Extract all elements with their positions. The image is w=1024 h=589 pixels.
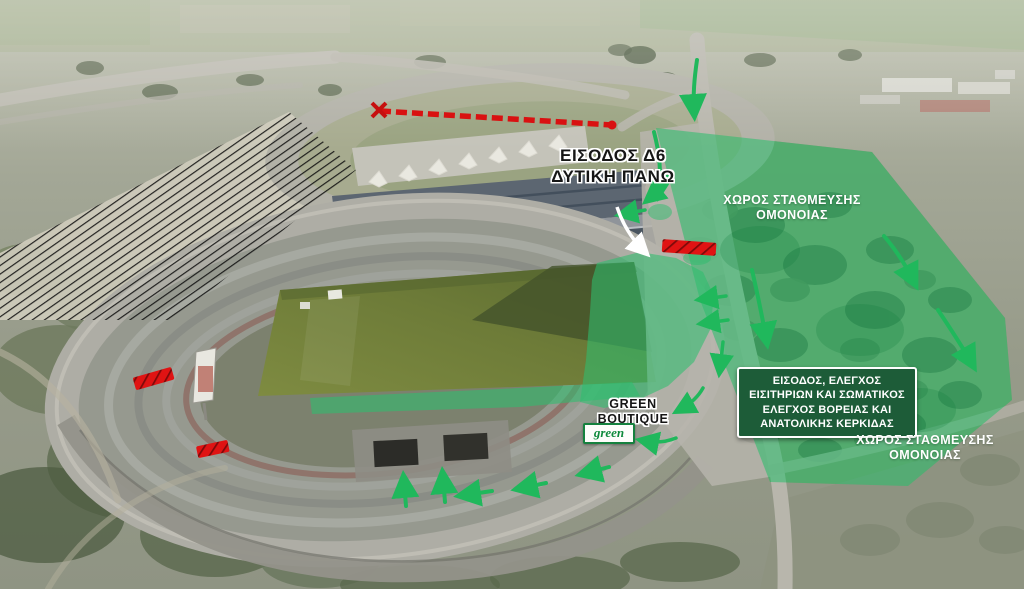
boutique-line1: GREEN [583, 397, 683, 412]
checkpoint-line2: ΕΙΣΙΤΗΡΙΩΝ ΚΑΙ ΣΩΜΑΤΙΚΟΣ [743, 388, 911, 402]
road-closed-barrier [196, 440, 230, 458]
parking-north-line2: ΟΜΟΝΟΙΑΣ [702, 208, 882, 223]
parking-north-line1: ΧΩΡΟΣ ΣΤΑΘΜΕΥΣΗΣ [702, 193, 882, 208]
route-arrow [522, 483, 546, 488]
checkpoint-line3: ΕΛΕΓΧΟΣ ΒΟΡΕΙΑΣ ΚΑΙ [743, 403, 911, 417]
entrance-d6-label: ΕΙΣΟΔΟΣ Δ6 ΔΥΤΙΚΗ ΠΑΝΩ [538, 146, 688, 187]
route-arrow [681, 388, 703, 409]
entrance-d6-line1: ΕΙΣΟΔΟΣ Δ6 [538, 146, 688, 167]
parking-south-line2: ΟΜΟΝΟΙΑΣ [835, 448, 1015, 463]
stadium-access-map: ΕΙΣΟΔΟΣ Δ6 ΔΥΤΙΚΗ ΠΑΝΩ ΧΩΡΟΣ ΣΤΑΘΜΕΥΣΗΣ … [0, 0, 1024, 589]
annotation-overlay [0, 0, 1024, 589]
route-arrow [586, 467, 609, 473]
green-boutique-logo: green [583, 423, 635, 444]
parking-north-label: ΧΩΡΟΣ ΣΤΑΘΜΕΥΣΗΣ ΟΜΟΝΟΙΑΣ [702, 193, 882, 224]
route-arrow [465, 491, 492, 495]
restricted-area-hatch [0, 112, 356, 320]
route-arrow [645, 438, 676, 442]
checkpoint-info-box: ΕΙΣΟΔΟΣ, ΕΛΕΓΧΟΣ ΕΙΣΙΤΗΡΙΩΝ ΚΑΙ ΣΩΜΑΤΙΚΟ… [737, 367, 917, 438]
closed-road-dashed-line [380, 111, 612, 125]
entrance-d6-line2: ΔΥΤΙΚΗ ΠΑΝΩ [538, 167, 688, 188]
checkpoint-line1: ΕΙΣΟΔΟΣ, ΕΛΕΓΧΟΣ [743, 374, 911, 388]
route-arrow [694, 60, 697, 110]
checkpoint-line4: ΑΝΑΤΟΛΙΚΗΣ ΚΕΡΚΙΔΑΣ [743, 417, 911, 431]
parking-south-line1: ΧΩΡΟΣ ΣΤΑΘΜΕΥΣΗΣ [835, 433, 1015, 448]
route-arrow [443, 478, 445, 502]
route-arrow [624, 210, 645, 214]
parking-south-label: ΧΩΡΟΣ ΣΤΑΘΜΕΥΣΗΣ ΟΜΟΝΟΙΑΣ [835, 433, 1015, 464]
road-closed-barrier [133, 367, 175, 391]
route-arrow [404, 482, 406, 506]
